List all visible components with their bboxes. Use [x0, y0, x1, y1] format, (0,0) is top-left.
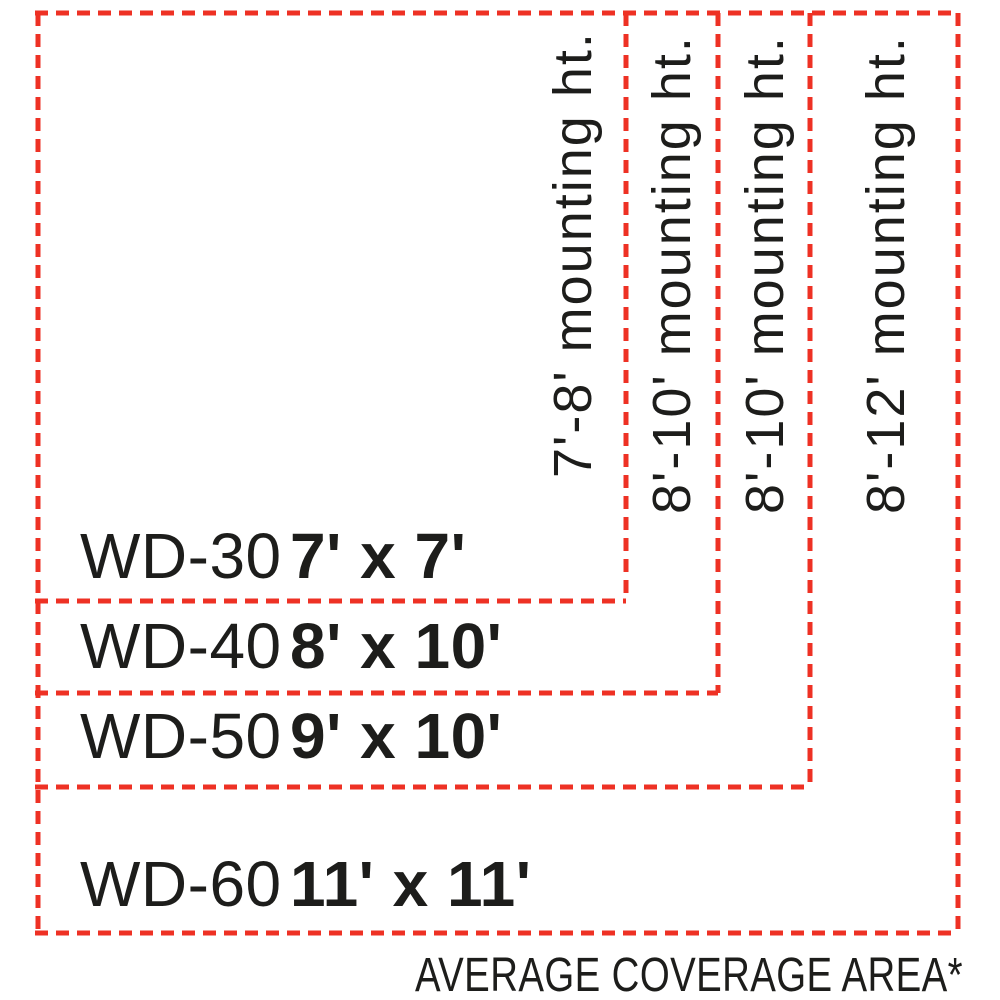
coverage-size: 7' x 7'	[290, 520, 466, 592]
mounting-height-label-wd-40: 8'-10' mounting ht.	[647, 35, 697, 514]
model-name: WD-30	[80, 524, 290, 588]
product-label-wd-50: WD-509' x 10'	[80, 704, 502, 768]
mounting-height-label-wd-50: 8'-10' mounting ht.	[740, 35, 790, 514]
product-label-wd-60: WD-6011' x 11'	[80, 852, 531, 916]
coverage-size: 8' x 10'	[290, 610, 502, 682]
coverage-area-diagram: 7'-8' mounting ht. 8'-10' mounting ht. 8…	[0, 0, 1000, 1000]
product-label-wd-40: WD-408' x 10'	[80, 614, 502, 678]
coverage-size: 9' x 10'	[290, 700, 502, 772]
mounting-height-label-wd-60: 8'-12' mounting ht.	[861, 35, 911, 514]
coverage-size: 11' x 11'	[290, 848, 531, 920]
mounting-height-label-wd-30: 7'-8' mounting ht.	[548, 31, 598, 478]
model-name: WD-50	[80, 704, 290, 768]
footnote: AVERAGE COVERAGE AREA*	[415, 952, 963, 1000]
product-label-wd-30: WD-307' x 7'	[80, 524, 466, 588]
model-name: WD-60	[80, 852, 290, 916]
model-name: WD-40	[80, 614, 290, 678]
